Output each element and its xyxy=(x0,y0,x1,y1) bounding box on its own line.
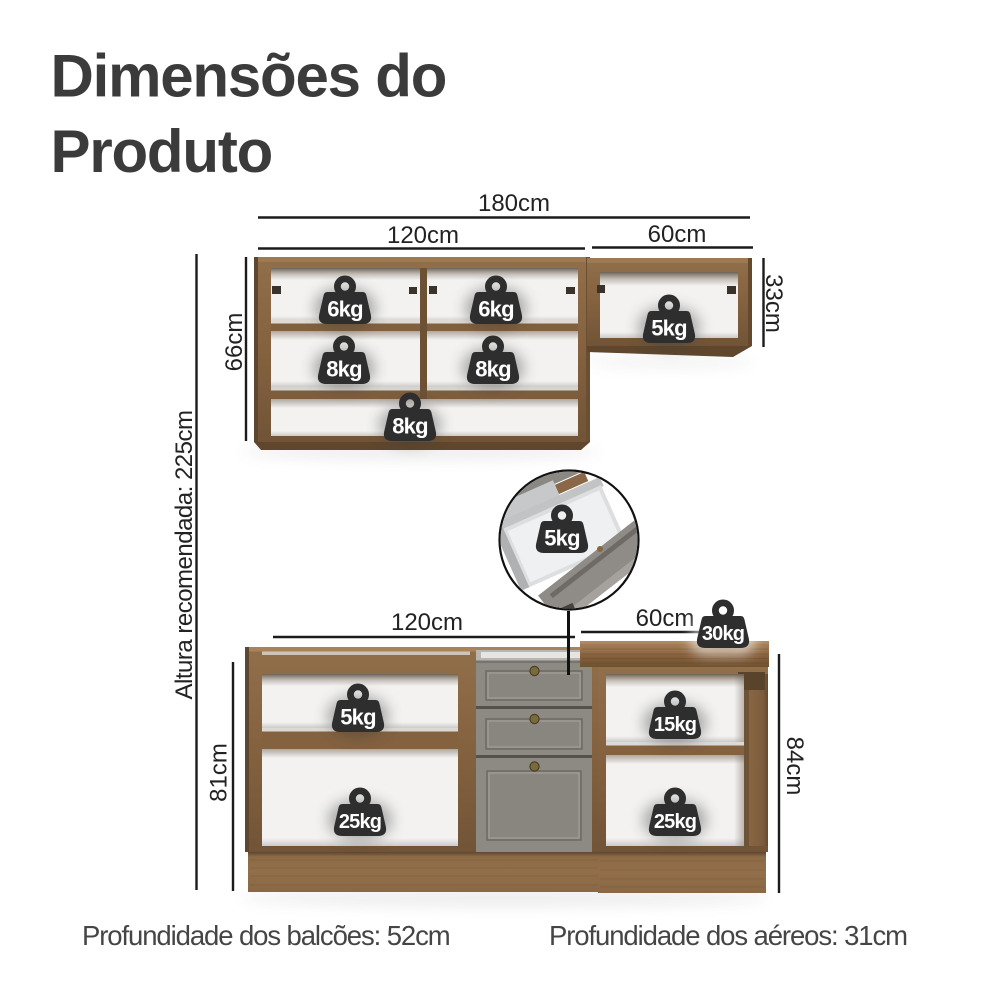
svg-text:25kg: 25kg xyxy=(654,811,696,833)
svg-text:Profundidade dos aéreos: 31cm: Profundidade dos aéreos: 31cm xyxy=(549,920,907,951)
svg-text:120cm: 120cm xyxy=(387,222,459,249)
svg-text:66cm: 66cm xyxy=(221,313,248,372)
svg-text:15kg: 15kg xyxy=(654,714,696,736)
svg-text:5kg: 5kg xyxy=(544,526,580,551)
svg-text:6kg: 6kg xyxy=(327,297,363,322)
svg-text:60cm: 60cm xyxy=(648,221,707,248)
svg-text:120cm: 120cm xyxy=(391,609,463,636)
svg-text:5kg: 5kg xyxy=(340,705,376,730)
svg-text:Dimensões do: Dimensões do xyxy=(51,43,447,110)
svg-text:Altura recomendada: 225cm: Altura recomendada: 225cm xyxy=(171,411,198,700)
svg-text:Profundidade dos balcões: 52cm: Profundidade dos balcões: 52cm xyxy=(82,920,450,951)
svg-text:60cm: 60cm xyxy=(636,605,695,632)
svg-text:84cm: 84cm xyxy=(781,737,808,796)
svg-text:8kg: 8kg xyxy=(475,357,511,382)
svg-text:33cm: 33cm xyxy=(760,274,787,333)
svg-text:5kg: 5kg xyxy=(651,316,687,341)
svg-text:180cm: 180cm xyxy=(478,190,550,217)
svg-text:81cm: 81cm xyxy=(206,743,233,802)
svg-text:8kg: 8kg xyxy=(326,357,362,382)
svg-text:30kg: 30kg xyxy=(702,623,744,645)
svg-text:25kg: 25kg xyxy=(339,811,381,833)
svg-text:8kg: 8kg xyxy=(392,414,428,439)
svg-text:Produto: Produto xyxy=(51,118,273,185)
svg-text:6kg: 6kg xyxy=(478,297,514,322)
